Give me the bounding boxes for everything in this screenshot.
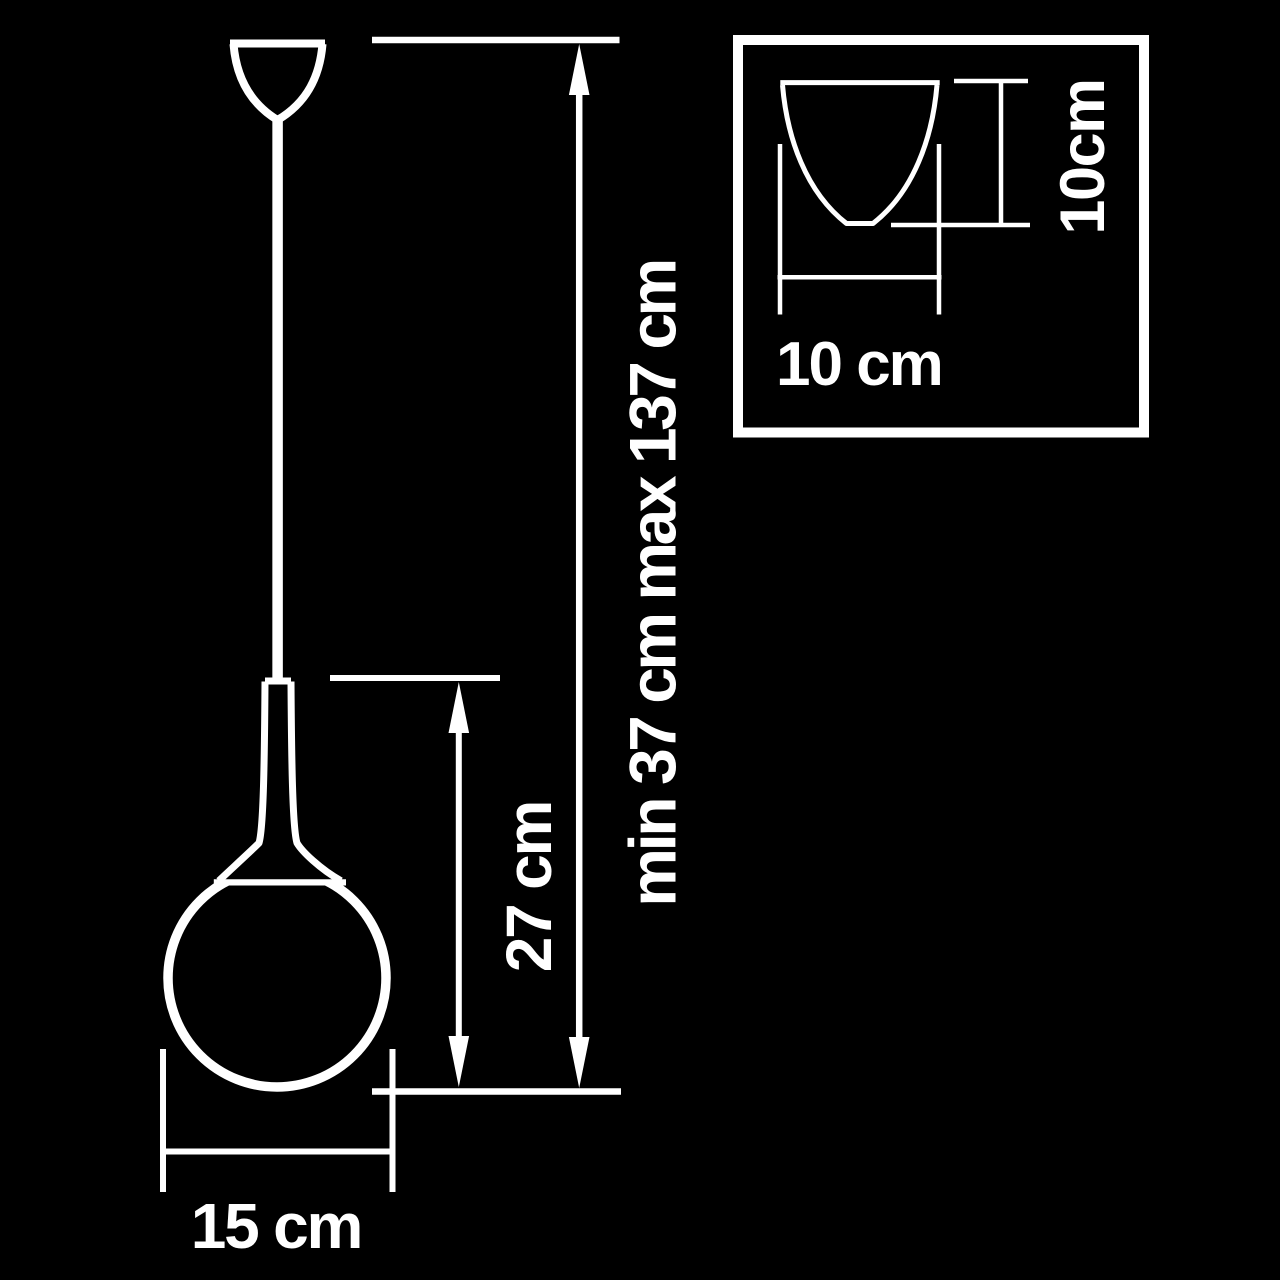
svg-text:15 cm: 15 cm <box>191 1190 361 1262</box>
svg-text:min 37 cm max 137 cm: min 37 cm max 137 cm <box>616 261 690 906</box>
svg-text:27 cm: 27 cm <box>493 802 565 972</box>
svg-text:10 cm: 10 cm <box>776 330 942 399</box>
svg-text:10cm: 10cm <box>1048 79 1118 234</box>
